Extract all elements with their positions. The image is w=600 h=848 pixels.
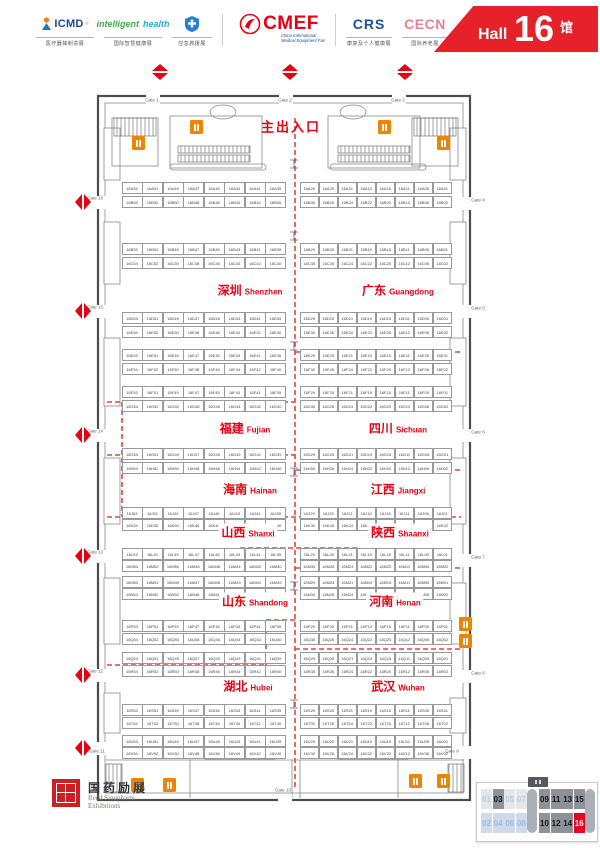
booth-cell: 16B26 bbox=[319, 196, 339, 208]
booth-cell: 16E45 bbox=[204, 349, 225, 361]
booth-cell: 16E24 bbox=[338, 326, 358, 338]
booth-cell: 16H50 bbox=[163, 462, 184, 474]
booth-cell: 16F44 bbox=[224, 363, 245, 375]
booth-cell: 16D43 bbox=[224, 312, 245, 324]
booth-cell: 16C22 bbox=[357, 257, 377, 269]
booth-cell: 16J49 bbox=[163, 507, 184, 519]
booth-cell: 16E41 bbox=[245, 349, 266, 361]
booth-cell: 16E26 bbox=[319, 326, 339, 338]
booth-cell: 16L51 bbox=[142, 548, 163, 560]
booth-cell: 16L29 bbox=[300, 548, 320, 560]
booth-cell: 16G06 bbox=[414, 400, 434, 412]
booth-cell: 16T54 bbox=[122, 717, 143, 729]
booth-cell: 16Q29 bbox=[300, 652, 320, 664]
booth-cell: 16V52 bbox=[142, 747, 163, 759]
booth-cell: 16J39 bbox=[265, 507, 286, 519]
booth-cell: 16H24 bbox=[338, 462, 358, 474]
booth-row: 16F5316F5116F4916F4716F4516F4316F4116F39 bbox=[122, 386, 286, 398]
legend-hall-07[interactable]: 07 bbox=[516, 789, 527, 809]
booth-cell: 16B11 bbox=[395, 243, 415, 255]
booth-cell: 16G51 bbox=[142, 448, 163, 460]
booth-cell: 16Q39 bbox=[265, 652, 286, 664]
booth-row: 16E5316E5116E4916E4716E4516E4316E4116E39 bbox=[122, 349, 286, 361]
booth-row: 16D5316D5116D4916D4716D4516D4316D4116D39 bbox=[122, 312, 286, 324]
booth-cell: 16P19 bbox=[357, 620, 377, 632]
booth-cell: 16M53 bbox=[122, 576, 143, 588]
booth-cell: 16U01 bbox=[433, 735, 453, 747]
booth-cell: 16E54 bbox=[122, 326, 143, 338]
booth-cell: 16R44 bbox=[224, 665, 245, 677]
reed-sinopharm-seal-icon bbox=[52, 779, 80, 807]
booth-cell: 16Q41 bbox=[245, 652, 266, 664]
booth-row: 16H5416H5216H5016H4816H4616H4416H4216H40 bbox=[122, 462, 286, 474]
booth-cell: 16Q26 bbox=[319, 633, 339, 645]
booth-cell: 16G24 bbox=[338, 400, 358, 412]
booth-cell: 16P53 bbox=[122, 620, 143, 632]
intelligent-health-wordmark-2: health bbox=[143, 19, 170, 29]
booth-cell: 16P25 bbox=[319, 620, 339, 632]
header-logo-strip: ICMD® 医疗器械制造展 intelligent health 国际智慧健康展… bbox=[36, 12, 498, 56]
booth-cell: 16V26 bbox=[319, 747, 339, 759]
booth-cell: 16N26 bbox=[319, 588, 339, 600]
booth-cell: 16J51 bbox=[142, 507, 163, 519]
cmef-subtitle: China International Medical Equipment Fa… bbox=[281, 34, 325, 44]
booth-cell: 16M29 bbox=[300, 576, 320, 588]
booth-cell: 16U19 bbox=[357, 735, 377, 747]
booth-cell: 16M22 bbox=[357, 560, 377, 572]
gate-label: Gate 8 bbox=[471, 671, 485, 676]
region-label-shandong: 山东Shandong bbox=[219, 593, 291, 610]
booth-cell: 16M50 bbox=[163, 560, 184, 572]
legend-hall-02[interactable]: 02 bbox=[481, 813, 492, 833]
booth-cell: 16G50 bbox=[163, 400, 184, 412]
booth-cell: 16Q25 bbox=[319, 652, 339, 664]
booth-cell: 16F50 bbox=[163, 363, 184, 375]
booth-row: 16G5416G5216G5016G4816G4616G4416G4216G40 bbox=[122, 400, 286, 412]
booth-cell: 16M54 bbox=[122, 560, 143, 572]
booth-row: 16U5316U5116U4916U4716U4516U4316U4116U39 bbox=[122, 735, 286, 747]
booth-cell: 16V20 bbox=[376, 747, 396, 759]
booth-cell: 16R54 bbox=[122, 665, 143, 677]
booth-cell: 16C06 bbox=[414, 257, 434, 269]
booth-cell: 16A25 bbox=[319, 182, 339, 194]
booth-row: 16L5316L5116L4916L4716L4516L4316L4116L39 bbox=[122, 548, 286, 560]
booth-cell: 16M30 bbox=[300, 560, 320, 572]
booth-cell: 16B45 bbox=[204, 243, 225, 255]
booth-cell: 16Q45 bbox=[204, 652, 225, 664]
booth-cell: 16V46 bbox=[204, 747, 225, 759]
booth-cell: 16N24 bbox=[338, 588, 358, 600]
booth-cell: 16B01 bbox=[433, 243, 453, 255]
booth-cell: 16T30 bbox=[300, 717, 320, 729]
region-label-guangdong: 广东Guangdong bbox=[359, 282, 437, 299]
booth-cell: 16B22 bbox=[357, 196, 377, 208]
booth-cell: 16F05 bbox=[414, 386, 434, 398]
booth-cell: 16Q40 bbox=[265, 633, 286, 645]
booth-cell: 16R42 bbox=[245, 665, 266, 677]
plan-overlays: 主出入口 16A5316A5116A4916A4716A4516A4316A41… bbox=[0, 0, 600, 848]
booth-cell: 16L05 bbox=[414, 548, 434, 560]
booth-row: 16H3016H2616H2416H2216H2016H1216H0616H02 bbox=[300, 462, 452, 474]
booth-row: 16T5416T5216T5016T4816T4616T4416T4216T40 bbox=[122, 717, 286, 729]
booth-cell: 16Q50 bbox=[163, 633, 184, 645]
booth-cell: 16H02 bbox=[433, 462, 453, 474]
booth-cell: 16U47 bbox=[183, 735, 204, 747]
booth-cell: 16F24 bbox=[338, 363, 358, 375]
booth-cell: 16S43 bbox=[224, 704, 245, 716]
booth-cell: 16B44 bbox=[224, 196, 245, 208]
booth-row: 16Q5316Q5116Q4916Q4716Q4516Q4316Q4116Q39 bbox=[122, 652, 286, 664]
booth-row: 16M3016M2616M2416M2216M2016M1216M0616M02 bbox=[300, 560, 452, 572]
booth-cell: 16G21 bbox=[338, 448, 358, 460]
booth-row: 16Q2916Q2516Q2116Q1916Q1516Q1116Q0516Q01 bbox=[300, 652, 452, 664]
legend-hall-09[interactable]: 09 bbox=[539, 789, 550, 809]
region-label-henan: 河南Henan bbox=[366, 593, 423, 610]
booth-cell: 16S25 bbox=[319, 704, 339, 716]
booth-cell: 16Q51 bbox=[142, 652, 163, 664]
direction-diamond-icon bbox=[397, 64, 413, 80]
booth-cell: 16L21 bbox=[338, 548, 358, 560]
booth-cell: 16B29 bbox=[300, 243, 320, 255]
booth-cell: 16T44 bbox=[224, 717, 245, 729]
toilet-icon bbox=[163, 778, 176, 792]
booth-cell: 16F12 bbox=[395, 363, 415, 375]
booth-cell: 16B05 bbox=[414, 243, 434, 255]
logo-emergency-rescue[interactable]: 应急救援展 bbox=[172, 12, 212, 47]
booth-cell: 16U21 bbox=[338, 735, 358, 747]
booth-cell: 16L01 bbox=[433, 548, 453, 560]
booth-row: 16F5416F5216F5016F4816F4616F4416F4216F40 bbox=[122, 363, 286, 375]
booth-cell: 16S45 bbox=[204, 704, 225, 716]
booth-row: 16T3016T2616T2416T2216T2016T1216T0616T02 bbox=[300, 717, 452, 729]
legend-hall-14[interactable]: 14 bbox=[562, 813, 573, 833]
logo-crs[interactable]: CRS 康复及个人健康展 bbox=[346, 12, 392, 47]
booth-cell: 16C46 bbox=[204, 257, 225, 269]
legend-hall-06[interactable]: 06 bbox=[504, 813, 515, 833]
booth-cell: 16T46 bbox=[204, 717, 225, 729]
booth-cell: 16A47 bbox=[183, 182, 204, 194]
booth-cell: 16G46 bbox=[204, 400, 225, 412]
booth-cell: 16F52 bbox=[142, 363, 163, 375]
booth-cell: 16F45 bbox=[204, 386, 225, 398]
booth-cell: 16F02 bbox=[433, 363, 453, 375]
booth-row: 16Q3016Q2616Q2416Q2216Q2016Q1216Q0616Q02 bbox=[300, 633, 452, 645]
legend-entrance-oval bbox=[527, 789, 537, 833]
booth-cell: 16E05 bbox=[414, 349, 434, 361]
booth-cell: 16E44 bbox=[224, 326, 245, 338]
booth-cell: 16R26 bbox=[319, 665, 339, 677]
booth-cell: 16V30 bbox=[300, 747, 320, 759]
legend-hall-12[interactable]: 12 bbox=[551, 813, 562, 833]
legend-hall-10[interactable]: 10 bbox=[539, 813, 550, 833]
booth-cell: 16F11 bbox=[395, 386, 415, 398]
cmef-emblem-icon bbox=[239, 13, 261, 35]
booth-cell: 16B43 bbox=[224, 243, 245, 255]
booth-row: 16C3016C2616C2416C2216C2016C1216C0616C02 bbox=[300, 257, 452, 269]
booth-cell: 16P41 bbox=[245, 620, 266, 632]
booth-cell: 16G52 bbox=[142, 400, 163, 412]
logo-cecn[interactable]: CECN 国际养老展 bbox=[402, 12, 448, 47]
booth-cell: 16E51 bbox=[142, 349, 163, 361]
booth-cell: 16R20 bbox=[376, 665, 396, 677]
booth-cell: 16B06 bbox=[414, 196, 434, 208]
booth-cell: 16H22 bbox=[357, 462, 377, 474]
booth-cell: 16B46 bbox=[204, 196, 225, 208]
booth-cell: 16V48 bbox=[183, 747, 204, 759]
booth-cell: 16G05 bbox=[414, 448, 434, 460]
booth-cell: 16L11 bbox=[395, 548, 415, 560]
booth-cell: 16B42 bbox=[245, 196, 266, 208]
booth-cell: 16M02 bbox=[433, 560, 453, 572]
booth-cell: 16C44 bbox=[224, 257, 245, 269]
booth-cell: 16T40 bbox=[265, 717, 286, 729]
booth-row: 16A5316A5116A4916A4716A4516A4316A4116A39 bbox=[122, 182, 286, 194]
booth-cell: 16S15 bbox=[376, 704, 396, 716]
booth-cell: 16E47 bbox=[183, 349, 204, 361]
booth-cell: 16R48 bbox=[183, 665, 204, 677]
booth-cell: 16B54 bbox=[122, 196, 143, 208]
booth-cell: 16B12 bbox=[395, 196, 415, 208]
booth-cell: 16M05 bbox=[414, 576, 434, 588]
region-label-fujian: 福建Fujian bbox=[217, 420, 274, 437]
legend-hall-01[interactable]: 01 bbox=[481, 789, 492, 809]
booth-cell: 16D19 bbox=[357, 312, 377, 324]
legend-hall-04[interactable]: 04 bbox=[493, 813, 504, 833]
booth-cell: 16F39 bbox=[265, 386, 286, 398]
booth-cell: 16V24 bbox=[338, 747, 358, 759]
booth-cell: 16F54 bbox=[122, 363, 143, 375]
booth-cell: 16D01 bbox=[433, 312, 453, 324]
booth-cell: 16R06 bbox=[414, 665, 434, 677]
booth-cell: 16V44 bbox=[224, 747, 245, 759]
booth-cell: 16E40 bbox=[265, 326, 286, 338]
booth-cell: 16P29 bbox=[300, 620, 320, 632]
booth-cell: 16Q12 bbox=[395, 633, 415, 645]
legend-hall-11[interactable]: 11 bbox=[551, 789, 562, 809]
logo-cmef[interactable]: CMEF China International Medical Equipme… bbox=[233, 12, 325, 44]
legend-hall-13[interactable]: 13 bbox=[562, 789, 573, 809]
logo-intelligent-health[interactable]: intelligent health 国际智慧健康展 bbox=[104, 12, 162, 47]
booth-cell: 16G53 bbox=[122, 448, 143, 460]
booth-row: 16M2916M2516M2116M1916M1516M1116M0516M01 bbox=[300, 576, 452, 588]
booth-cell: 16M01 bbox=[433, 576, 453, 588]
booth-cell: 16D15 bbox=[376, 312, 396, 324]
booth-cell: 16M25 bbox=[319, 576, 339, 588]
direction-diamond-icon bbox=[282, 64, 298, 80]
booth-cell: 16G43 bbox=[224, 448, 245, 460]
booth-cell: 16G19 bbox=[357, 448, 377, 460]
booth-cell: 16M41 bbox=[245, 576, 266, 588]
booth-cell: 16U05 bbox=[414, 735, 434, 747]
booth-cell: 16S29 bbox=[300, 704, 320, 716]
booth-row: 16F2916F2516F2116F1916F1516F1116F0516F01 bbox=[300, 386, 452, 398]
booth-cell: 16T42 bbox=[245, 717, 266, 729]
legend-hall-15[interactable]: 15 bbox=[574, 789, 585, 809]
booth-cell: 16E22 bbox=[357, 326, 377, 338]
booth-cell: 16U49 bbox=[163, 735, 184, 747]
booth-cell: 16Q02 bbox=[433, 633, 453, 645]
booth-cell: 16A43 bbox=[224, 182, 245, 194]
booth-row: 16J5316J5116J4916J4716J4516J4316J4116J39 bbox=[122, 507, 286, 519]
gate-label: Gate 6 bbox=[471, 430, 485, 435]
booth-cell: 16N48 bbox=[183, 588, 204, 600]
booth-cell: 16Q01 bbox=[433, 652, 453, 664]
booth-cell: 16B15 bbox=[376, 243, 396, 255]
booth-cell: 16N02 bbox=[433, 588, 453, 600]
booth-cell: 16B41 bbox=[245, 243, 266, 255]
booth-cell: 16F21 bbox=[338, 386, 358, 398]
direction-diamond-icon bbox=[75, 548, 91, 564]
booth-cell: 16C40 bbox=[265, 257, 286, 269]
booth-row: 16Q5416Q5216Q5016Q4816Q4616Q4416Q4216Q40 bbox=[122, 633, 286, 645]
booth-cell: 16E50 bbox=[163, 326, 184, 338]
booth-cell: 16S51 bbox=[142, 704, 163, 716]
logo-divider bbox=[335, 14, 336, 46]
booth-cell: 16T50 bbox=[163, 717, 184, 729]
icmd-wordmark: ICMD bbox=[54, 18, 83, 30]
booth-cell: 16A15 bbox=[376, 182, 396, 194]
booth-cell: 16U39 bbox=[265, 735, 286, 747]
booth-cell: 16B53 bbox=[122, 243, 143, 255]
booth-cell: 16Q47 bbox=[183, 652, 204, 664]
booth-cell: 16N52 bbox=[142, 588, 163, 600]
booth-cell: 16G29 bbox=[300, 448, 320, 460]
booth-cell: 16N30 bbox=[300, 588, 320, 600]
booth-cell: 16S49 bbox=[163, 704, 184, 716]
booth-cell: 16L45 bbox=[204, 548, 225, 560]
booth-cell: 16K02 bbox=[433, 519, 453, 531]
booth-cell: 16P39 bbox=[265, 620, 286, 632]
booth-cell: 16B24 bbox=[338, 196, 358, 208]
booth-cell: 16T48 bbox=[183, 717, 204, 729]
region-label-shaanxi: 陕西Shaanxi bbox=[368, 524, 432, 541]
booth-cell: 16V50 bbox=[163, 747, 184, 759]
direction-diamond-icon bbox=[75, 427, 91, 443]
booth-cell: 16M40 bbox=[265, 560, 286, 572]
booth-cell: 16S41 bbox=[245, 704, 266, 716]
booth-cell: 16P05 bbox=[414, 620, 434, 632]
booth-cell: 16U41 bbox=[245, 735, 266, 747]
booth-cell: 16M39 bbox=[265, 576, 286, 588]
booth-cell: 16G47 bbox=[183, 448, 204, 460]
booth-cell: 16G15 bbox=[376, 448, 396, 460]
booth-cell: 16U45 bbox=[204, 735, 225, 747]
booth-cell: 16L19 bbox=[357, 548, 377, 560]
booth-cell: 16M15 bbox=[376, 576, 396, 588]
booth-row: 16B2916B2516B2116B1916B1516B1116B0516B01 bbox=[300, 243, 452, 255]
legend-hall-16[interactable]: 16 bbox=[574, 813, 585, 833]
booth-row: 16S2916S2516S2116S1916S1516S1116S0516S01 bbox=[300, 704, 452, 716]
booth-cell: 16V42 bbox=[245, 747, 266, 759]
legend-header-badge bbox=[528, 777, 548, 787]
booth-cell: 16A51 bbox=[142, 182, 163, 194]
gate-label: Gate 9 bbox=[445, 749, 459, 754]
region-label-hubei: 湖北Hubei bbox=[220, 678, 275, 695]
booth-cell: 16K48 bbox=[183, 519, 204, 531]
booth-cell: 16L39 bbox=[265, 548, 286, 560]
booth-row: 16E3016E2616E2416E2216E2016E1216E0616E02 bbox=[300, 326, 452, 338]
booth-cell: 16B02 bbox=[433, 196, 453, 208]
booth-cell: 16F53 bbox=[122, 386, 143, 398]
toilet-icon bbox=[132, 136, 145, 150]
booth-cell: 16F40 bbox=[265, 363, 286, 375]
direction-diamond-icon bbox=[152, 64, 168, 80]
booth-cell: 16Q52 bbox=[142, 633, 163, 645]
booth-cell: 16C24 bbox=[338, 257, 358, 269]
booth-cell: 16R02 bbox=[433, 665, 453, 677]
booth-cell: 16K50 bbox=[163, 519, 184, 531]
booth-cell: 16H06 bbox=[414, 462, 434, 474]
booth-cell: 16E06 bbox=[414, 326, 434, 338]
cmef-wordmark: CMEF bbox=[263, 14, 319, 33]
logo-divider bbox=[222, 14, 223, 46]
toilet-icon bbox=[409, 774, 422, 788]
booth-cell: 16K52 bbox=[142, 519, 163, 531]
booth-cell: 16E25 bbox=[319, 349, 339, 361]
booth-row: 16G5316G5116G4916G4716G4516G4316G4116G39 bbox=[122, 448, 286, 460]
booth-cell: 16S53 bbox=[122, 704, 143, 716]
booth-row: 16C5416C5216C5016C4816C4616C4416C4216C40 bbox=[122, 257, 286, 269]
crs-caption: 康复及个人健康展 bbox=[346, 37, 392, 47]
booth-row: 16G3016G2616G2416G2216G2016G1216G0616G02 bbox=[300, 400, 452, 412]
region-label-shenzhen: 深圳Shenzhen bbox=[215, 282, 286, 299]
booth-cell: 16A53 bbox=[122, 182, 143, 194]
booth-cell: 16D41 bbox=[245, 312, 266, 324]
booth-cell: 16E39 bbox=[265, 349, 286, 361]
booth-cell: 16H12 bbox=[395, 462, 415, 474]
booth-cell: 16J05 bbox=[414, 507, 434, 519]
booth-cell: 16E49 bbox=[163, 349, 184, 361]
booth-cell: 16G44 bbox=[224, 400, 245, 412]
booth-cell: 16L43 bbox=[224, 548, 245, 560]
booth-cell: 16T24 bbox=[338, 717, 358, 729]
booth-cell: 16M06 bbox=[414, 560, 434, 572]
booth-cell: 16E20 bbox=[376, 326, 396, 338]
booth-cell: 16S11 bbox=[395, 704, 415, 716]
booth-cell: 16B49 bbox=[163, 243, 184, 255]
booth-cell: 16K26 bbox=[319, 519, 339, 531]
booth-cell: 16J01 bbox=[433, 507, 453, 519]
booth-cell: 16H40 bbox=[265, 462, 286, 474]
booth-cell: 16S47 bbox=[183, 704, 204, 716]
booth-cell: 16S05 bbox=[414, 704, 434, 716]
booth-cell: 16H48 bbox=[183, 462, 204, 474]
booth-cell: 16A01 bbox=[433, 182, 453, 194]
booth-cell: 16T26 bbox=[319, 717, 339, 729]
legend-hall-08[interactable]: 08 bbox=[516, 813, 527, 833]
booth-cell: 16G11 bbox=[395, 448, 415, 460]
booth-cell: 16H42 bbox=[245, 462, 266, 474]
region-label-jiangxi: 江西Jiangxi bbox=[368, 481, 429, 498]
booth-cell: 16M47 bbox=[183, 576, 204, 588]
booth-cell: 16G25 bbox=[319, 448, 339, 460]
direction-diamond-icon bbox=[75, 740, 91, 756]
booth-cell: 16R40 bbox=[265, 665, 286, 677]
legend-hall-05[interactable]: 05 bbox=[504, 789, 515, 809]
booth-cell: 16E19 bbox=[357, 349, 377, 361]
booth-cell: 16E43 bbox=[224, 349, 245, 361]
logo-icmd[interactable]: ICMD® 医疗器械制造展 bbox=[36, 12, 94, 47]
booth-cell: 16D21 bbox=[338, 312, 358, 324]
booth-cell: 16S21 bbox=[338, 704, 358, 716]
booth-cell: 16Q19 bbox=[357, 652, 377, 664]
legend-hall-03[interactable]: 03 bbox=[493, 789, 504, 809]
booth-cell: 16G54 bbox=[122, 400, 143, 412]
icmd-caption: 医疗器械制造展 bbox=[36, 37, 94, 47]
region-label-shanxi: 山西Shanxi bbox=[218, 524, 277, 541]
booth-row: 16E2916E2516E2116E1916E1516E1116E0516E01 bbox=[300, 349, 452, 361]
booth-cell: 16G12 bbox=[395, 400, 415, 412]
